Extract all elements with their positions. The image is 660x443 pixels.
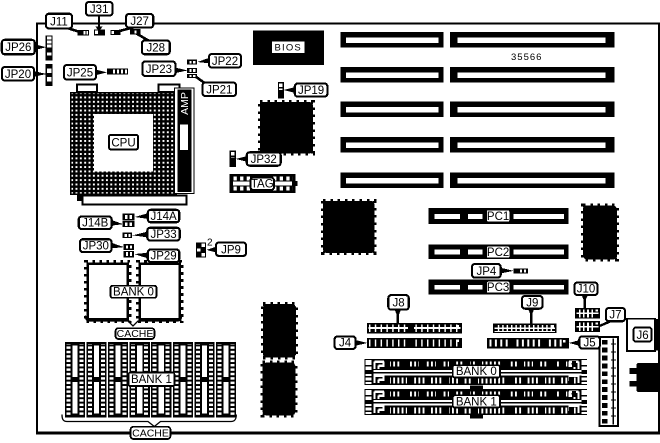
svg-text:JP9: JP9: [221, 244, 241, 256]
svg-text:BANK 0: BANK 0: [113, 287, 154, 299]
svg-text:J6: J6: [637, 330, 649, 342]
svg-text:CACHE: CACHE: [117, 328, 154, 340]
svg-text:J27: J27: [130, 16, 149, 28]
svg-text:JP21: JP21: [206, 84, 232, 96]
svg-text:BIOS: BIOS: [274, 43, 302, 54]
svg-text:JP4: JP4: [476, 266, 496, 278]
svg-text:JP20: JP20: [5, 69, 31, 81]
svg-text:PC1: PC1: [487, 211, 509, 223]
svg-text:BANK 0: BANK 0: [456, 366, 497, 378]
svg-text:J9: J9: [526, 297, 538, 309]
svg-text:TAG: TAG: [251, 179, 274, 191]
svg-text:J28: J28: [147, 43, 166, 55]
svg-text:JP32: JP32: [251, 154, 277, 166]
svg-text:J11: J11: [50, 16, 68, 28]
svg-text:J4: J4: [339, 338, 352, 350]
svg-text:JP30: JP30: [83, 241, 109, 253]
svg-text:BANK 1: BANK 1: [456, 396, 497, 408]
svg-text:J14A: J14A: [150, 211, 177, 223]
svg-text:J10: J10: [577, 284, 596, 296]
svg-text:JP29: JP29: [150, 251, 176, 263]
svg-text:AMP: AMP: [179, 92, 191, 115]
svg-text:J14B: J14B: [82, 218, 109, 230]
svg-text:BANK 1: BANK 1: [131, 374, 172, 386]
svg-text:J31: J31: [90, 4, 109, 16]
svg-text:JP33: JP33: [150, 229, 176, 241]
svg-text:CACHE: CACHE: [132, 428, 169, 440]
svg-text:2: 2: [207, 238, 213, 249]
svg-text:JP23: JP23: [146, 64, 172, 76]
svg-text:J8: J8: [393, 298, 405, 310]
svg-text:JP22: JP22: [212, 56, 238, 68]
svg-text:JP19: JP19: [298, 85, 324, 97]
svg-text:PC3: PC3: [487, 282, 509, 294]
svg-text:J5: J5: [584, 337, 596, 349]
svg-text:JP26: JP26: [5, 42, 31, 54]
svg-text:CPU: CPU: [111, 137, 135, 149]
svg-text:PC2: PC2: [487, 247, 509, 259]
svg-text:35566: 35566: [511, 52, 542, 63]
svg-text:JP25: JP25: [67, 67, 93, 79]
svg-text:J7: J7: [609, 310, 621, 322]
